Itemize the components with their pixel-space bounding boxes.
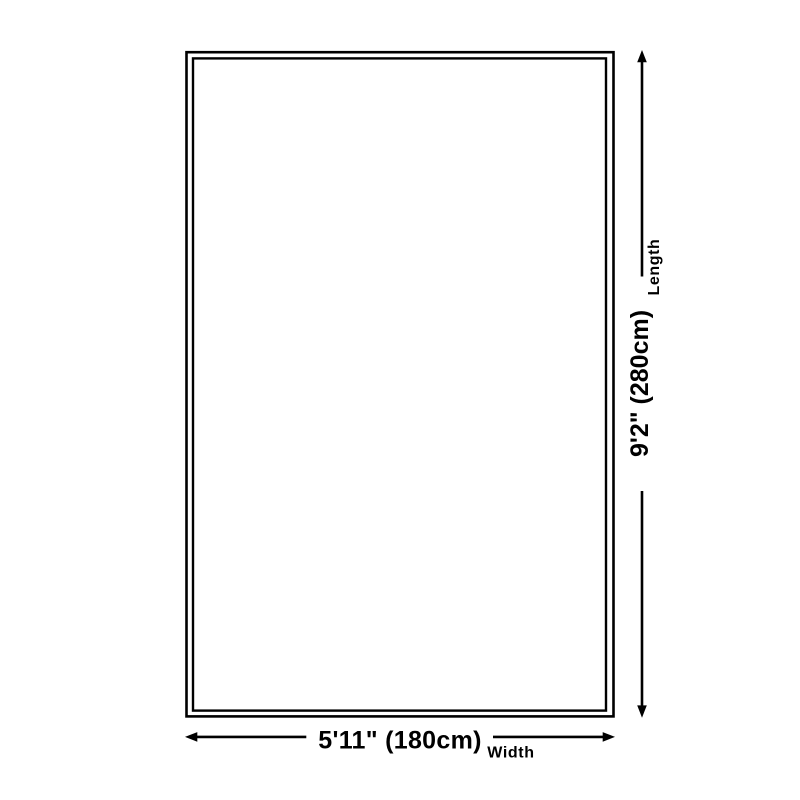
svg-text:Width: Width <box>487 745 534 762</box>
svg-text:9'2" (280cm): 9'2" (280cm) <box>626 310 654 457</box>
svg-text:Length: Length <box>646 239 663 296</box>
svg-text:5'11" (180cm): 5'11" (180cm) <box>318 726 481 754</box>
